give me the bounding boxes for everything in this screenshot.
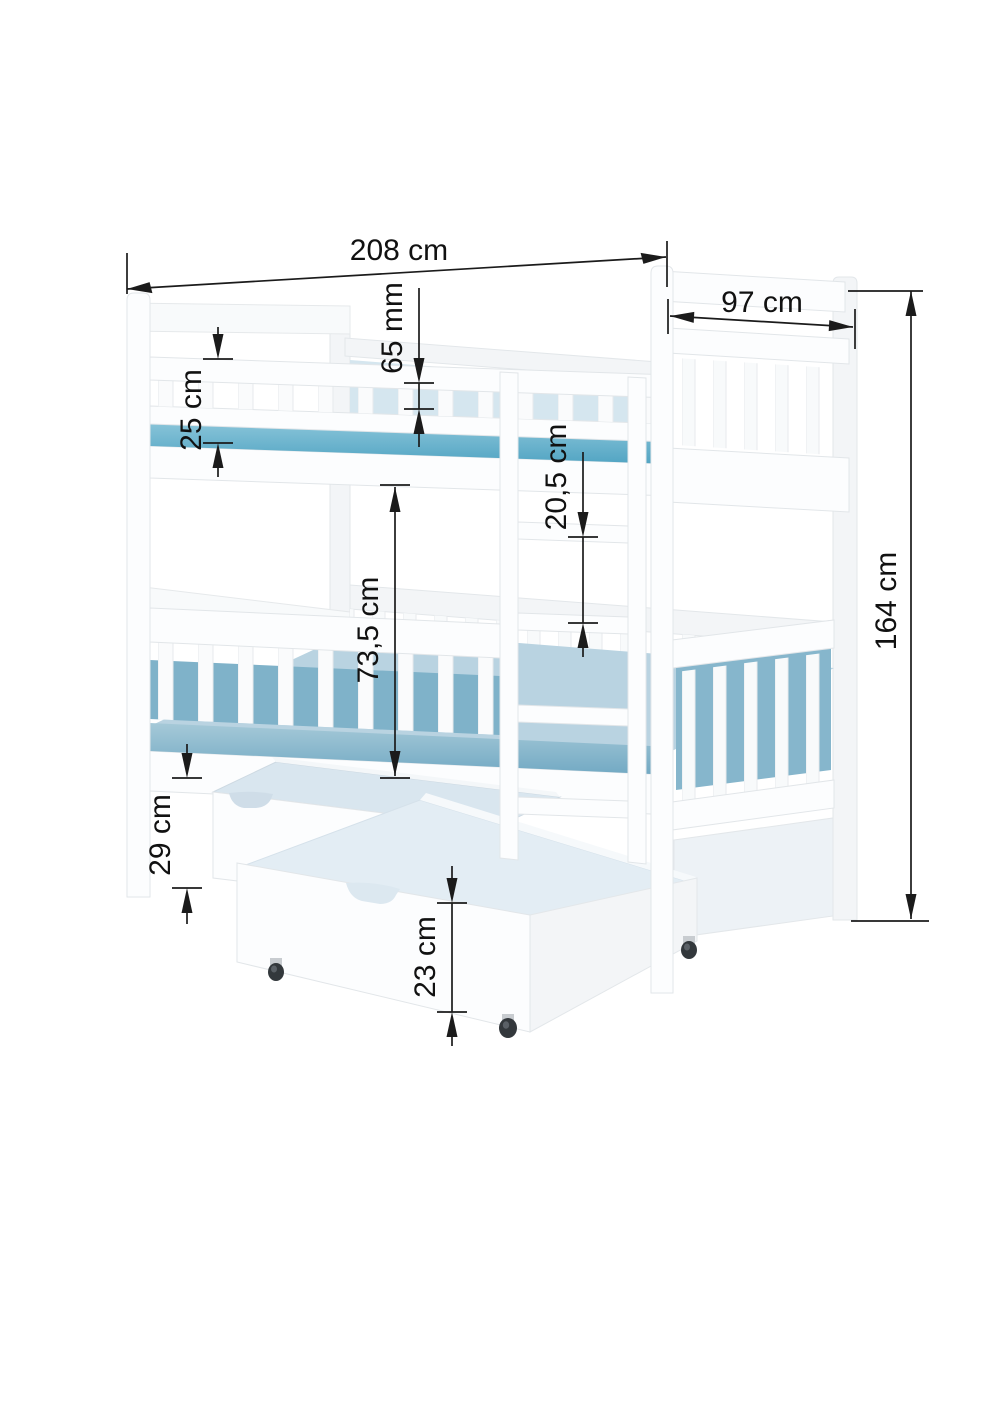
drawing-canvas: 208 cm 97 cm 65 mm: [0, 0, 992, 1403]
ladder-rung: [518, 797, 628, 818]
rear-right-post: [833, 277, 857, 920]
bunk-bed-dimension-drawing: 208 cm 97 cm 65 mm: [0, 0, 992, 1403]
front-right-post: [651, 266, 673, 993]
dimension-label-guard-above-mattress: 25 cm: [175, 369, 208, 451]
ladder-rung: [518, 522, 628, 543]
left-headboard-top-rail: [127, 303, 350, 334]
dimension-label-clearance-between-bunks: 73,5 cm: [352, 577, 385, 684]
dimension-label-bed-depth: 97 cm: [721, 286, 803, 319]
caster-wheel: [499, 1018, 517, 1038]
dimension-label-ladder-step-spacing: 20,5 cm: [540, 424, 573, 531]
right-headboard-upper-slats: [676, 358, 831, 455]
ladder-right-stile: [628, 377, 646, 864]
right-headboard-second-rail: [668, 328, 849, 364]
dimension-label-guard-rail-gap: 65 mm: [376, 282, 409, 374]
dimension-label-drawer-height: 23 cm: [409, 916, 442, 998]
ladder-left-stile: [500, 372, 518, 860]
drawer-rear-portion: [674, 818, 833, 938]
caster-wheel: [681, 941, 697, 959]
ladder-rung: [518, 705, 628, 726]
bed-illustration: [127, 266, 857, 1038]
dimension-label-bed-height: 164 cm: [870, 552, 903, 650]
dimension-label-bed-length: 208 cm: [350, 234, 448, 267]
dimension-label-underbed-height: 29 cm: [144, 794, 177, 876]
caster-wheel: [268, 963, 284, 981]
top-bunk-end-band: [668, 448, 849, 512]
dimension-bed-height: 164 cm: [848, 291, 929, 921]
